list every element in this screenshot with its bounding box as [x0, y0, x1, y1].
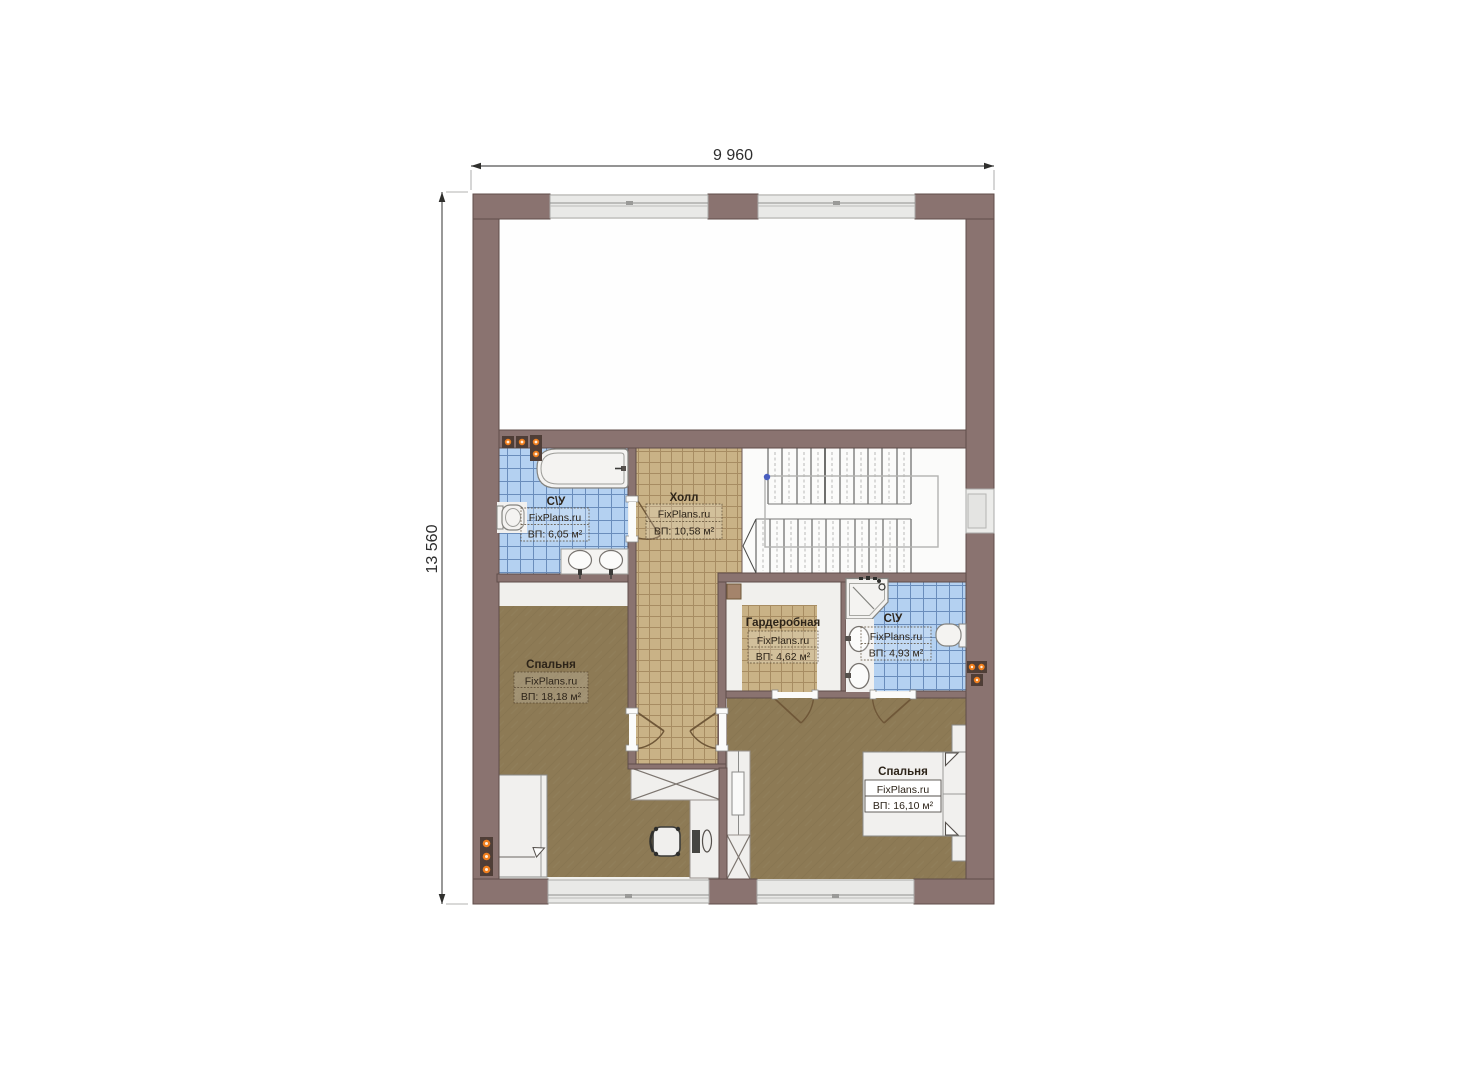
svg-text:ВП: 10,58 м²: ВП: 10,58 м²	[654, 526, 715, 538]
svg-text:С\У: С\У	[884, 613, 904, 625]
svg-text:Спальня: Спальня	[526, 659, 576, 671]
svg-text:ВП: 18,18 м²: ВП: 18,18 м²	[521, 691, 582, 703]
svg-text:FixPlans.ru: FixPlans.ru	[658, 509, 711, 521]
svg-text:ВП: 4,62 м²: ВП: 4,62 м²	[756, 651, 811, 663]
svg-text:FixPlans.ru: FixPlans.ru	[525, 676, 578, 688]
svg-text:13 560: 13 560	[424, 524, 441, 573]
svg-text:ВП: 4,93 м²: ВП: 4,93 м²	[869, 648, 924, 660]
svg-text:FixPlans.ru: FixPlans.ru	[529, 512, 582, 524]
svg-text:ВП: 16,10 м²: ВП: 16,10 м²	[873, 800, 934, 812]
svg-text:Гардеробная: Гардеробная	[746, 617, 820, 629]
svg-text:FixPlans.ru: FixPlans.ru	[877, 784, 930, 796]
svg-text:FixPlans.ru: FixPlans.ru	[757, 635, 810, 647]
svg-text:9 960: 9 960	[713, 147, 753, 164]
svg-text:Холл: Холл	[670, 492, 699, 504]
svg-text:ВП: 6,05 м²: ВП: 6,05 м²	[528, 529, 583, 541]
svg-text:Спальня: Спальня	[878, 766, 928, 778]
svg-text:FixPlans.ru: FixPlans.ru	[870, 631, 923, 643]
svg-text:С\У: С\У	[547, 496, 567, 508]
